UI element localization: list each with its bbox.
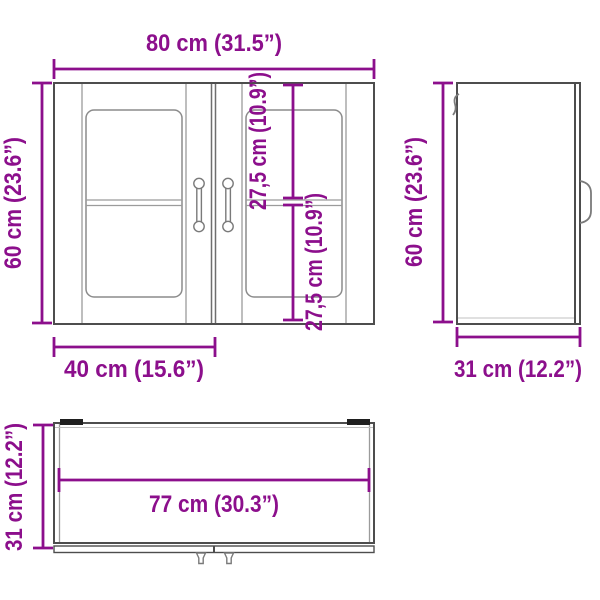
front-door-width-label: 40 cm (15.6”) (64, 356, 204, 383)
bottom-right-handle (225, 553, 234, 564)
front-height-label: 60 cm (23.6”) (0, 137, 27, 269)
front-upper-section-label: 27,5 cm (10.9”) (245, 72, 272, 210)
front-lower-section-label: 27,5 cm (10.9”) (301, 193, 328, 331)
side-height-label: 60 cm (23.6”) (401, 137, 428, 267)
side-door-handle (580, 181, 591, 223)
front-height-dimension: 60 cm (23.6”) (0, 83, 52, 323)
front-width-label: 80 cm (31.5”) (146, 30, 282, 57)
diagram-svg: 80 cm (31.5”) 60 cm (23.6”) 27,5 cm (10.… (0, 0, 600, 600)
front-view: 80 cm (31.5”) 60 cm (23.6”) 27,5 cm (10.… (0, 30, 374, 383)
side-carcass (457, 83, 580, 324)
front-width-dimension: 80 cm (31.5”) (54, 30, 374, 79)
bottom-carcass (54, 423, 374, 543)
side-height-dimension: 60 cm (23.6”) (401, 83, 453, 322)
wall-bracket-left (60, 419, 83, 425)
side-view: 60 cm (23.6”) 31 cm (12.2”) (401, 83, 591, 383)
front-door-width-dimension: 40 cm (15.6”) (54, 337, 215, 383)
bottom-view: 77 cm (30.3”) 31 cm (12.2”) (1, 419, 374, 564)
dimension-diagram: 80 cm (31.5”) 60 cm (23.6”) 27,5 cm (10.… (0, 0, 600, 600)
bottom-left-handle (197, 553, 206, 564)
wall-bracket-right (347, 419, 370, 425)
side-depth-label: 31 cm (12.2”) (454, 356, 582, 383)
bottom-inner-width-label: 77 cm (30.3”) (149, 491, 279, 518)
bottom-depth-dimension: 31 cm (12.2”) (1, 423, 53, 551)
bottom-depth-label: 31 cm (12.2”) (1, 423, 28, 551)
side-depth-dimension: 31 cm (12.2”) (454, 327, 582, 383)
